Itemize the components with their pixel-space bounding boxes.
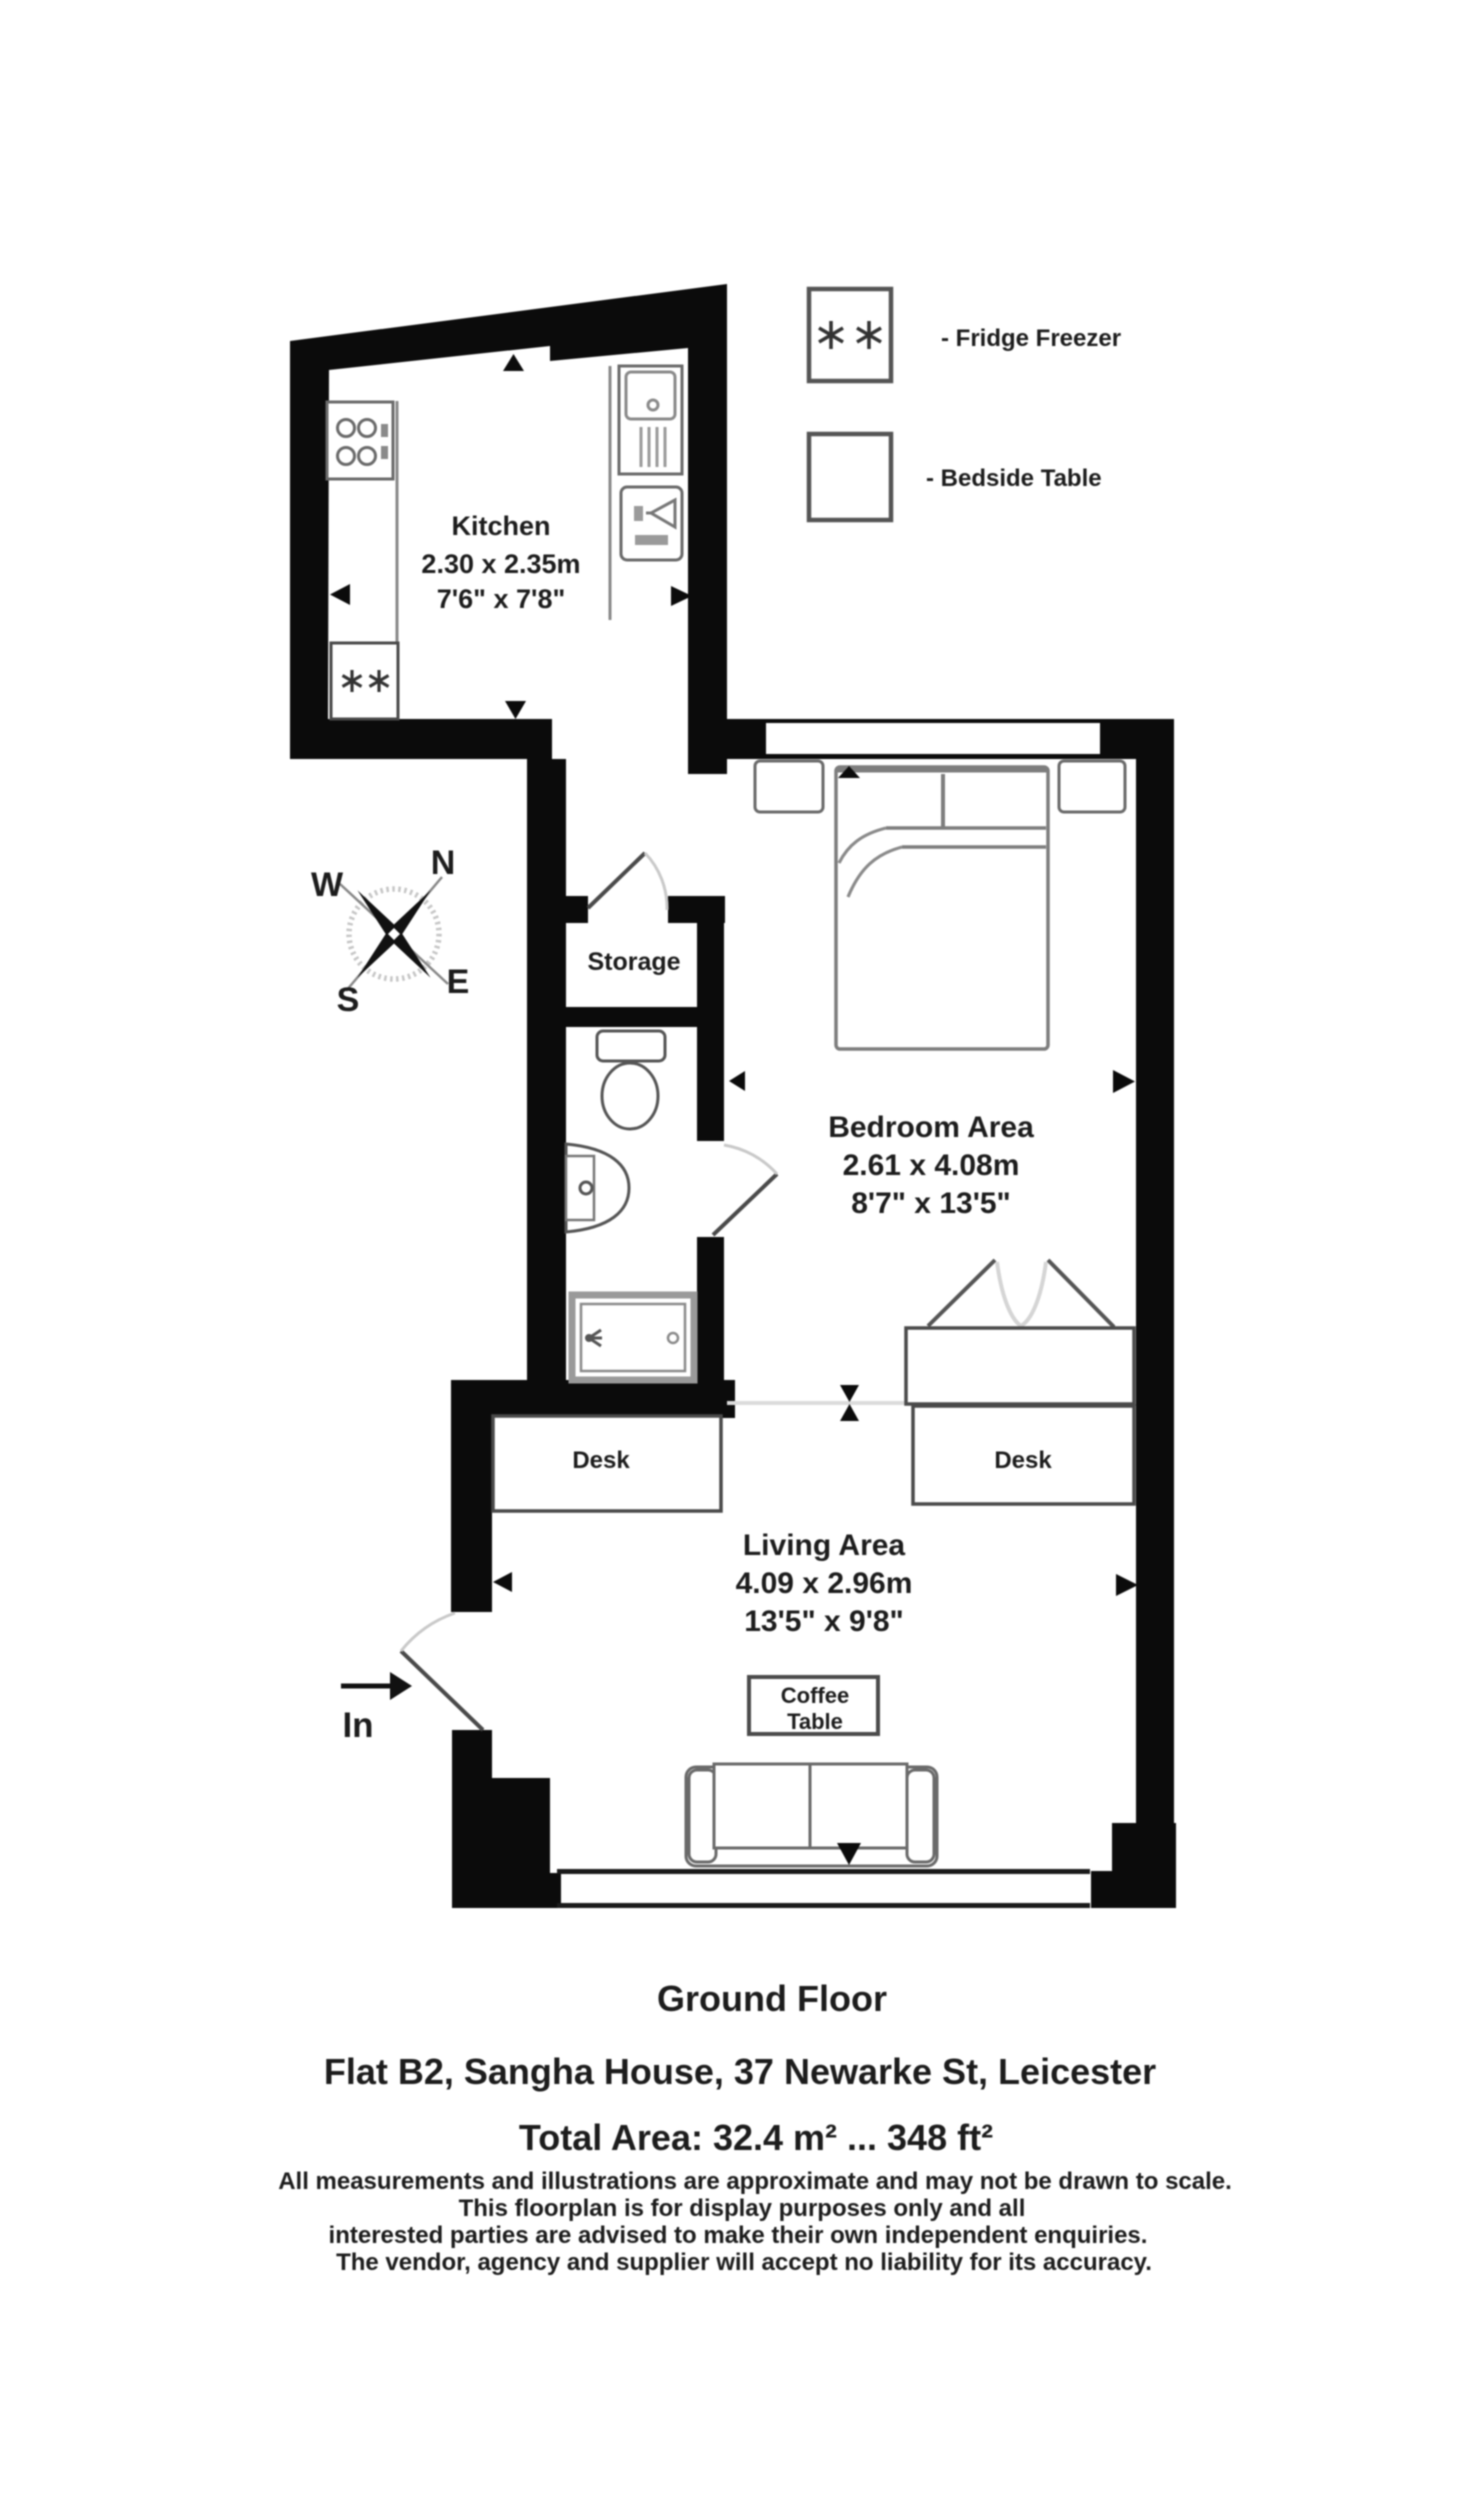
- svg-text:W: W: [311, 866, 344, 904]
- svg-text:4.09 x 2.96m: 4.09 x 2.96m: [736, 1567, 913, 1600]
- svg-text:E: E: [447, 963, 470, 1001]
- svg-text:This floorplan is for display: This floorplan is for display purposes o…: [459, 2195, 1026, 2222]
- svg-text:Total Area: 32.4 m² ... 348 ft: Total Area: 32.4 m² ... 348 ft²: [519, 2117, 993, 2158]
- svg-text:Desk: Desk: [572, 1447, 630, 1474]
- svg-text:All measurements and illustrat: All measurements and illustrations are a…: [278, 2168, 1232, 2195]
- svg-text:Bedroom Area: Bedroom Area: [828, 1111, 1034, 1144]
- svg-text:The vendor, agency and supplie: The vendor, agency and supplier will acc…: [336, 2249, 1152, 2276]
- svg-text:Coffee: Coffee: [781, 1683, 849, 1708]
- svg-text:In: In: [342, 1706, 373, 1745]
- svg-text:7'6" x 7'8": 7'6" x 7'8": [437, 584, 566, 614]
- svg-text:S: S: [337, 981, 360, 1019]
- svg-text:- Fridge Freezer: - Fridge Freezer: [941, 325, 1121, 352]
- svg-text:13'5" x 9'8": 13'5" x 9'8": [744, 1605, 904, 1638]
- svg-text:Storage: Storage: [587, 948, 680, 976]
- svg-text:Ground Floor: Ground Floor: [657, 1978, 887, 2019]
- svg-text:Kitchen: Kitchen: [451, 511, 550, 541]
- svg-text:N: N: [431, 844, 456, 882]
- svg-text:Flat B2, Sangha House, 37 Newa: Flat B2, Sangha House, 37 Newarke St, Le…: [324, 2051, 1156, 2092]
- svg-text:interested parties are advised: interested parties are advised to make t…: [329, 2222, 1148, 2249]
- svg-text:2.61 x 4.08m: 2.61 x 4.08m: [843, 1149, 1020, 1182]
- svg-text:Desk: Desk: [994, 1447, 1052, 1474]
- svg-text:Table: Table: [787, 1709, 843, 1734]
- svg-text:2.30 x 2.35m: 2.30 x 2.35m: [421, 549, 580, 579]
- svg-text:- Bedside Table: - Bedside Table: [926, 465, 1102, 492]
- svg-text:8'7" x 13'5": 8'7" x 13'5": [851, 1187, 1011, 1220]
- svg-text:Living Area: Living Area: [743, 1529, 906, 1562]
